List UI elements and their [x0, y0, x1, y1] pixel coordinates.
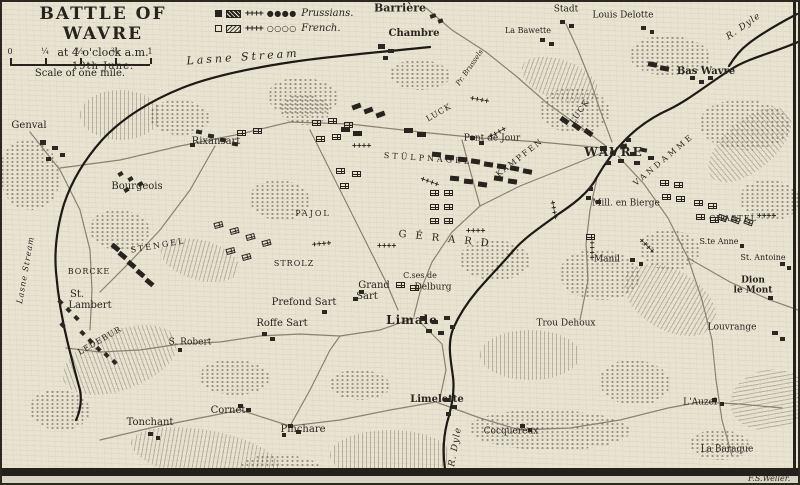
map-label: R. Dyle	[725, 12, 763, 42]
map-label: Chambre	[389, 29, 440, 39]
french-picket-marks: ++++	[245, 24, 263, 34]
french-skirmish-dots: ○ ○ ○ ○	[267, 24, 296, 33]
map-label: Delburg	[414, 284, 451, 293]
scale-tick	[45, 58, 47, 64]
scale-tick-label: 1	[147, 47, 152, 56]
scale-tick-label: ½	[76, 47, 84, 56]
french-cavalry-icon	[226, 25, 241, 33]
map-label: Pinchare	[280, 425, 325, 435]
map-label: Pajol	[295, 210, 331, 218]
map-label: S.te Anne	[699, 238, 738, 246]
map-label: Manil	[594, 256, 620, 265]
map-label: St. Antoine	[740, 254, 785, 262]
map-label: Trou Dehoux	[536, 320, 595, 329]
map-label: Ledebur	[77, 325, 123, 356]
french-infantry-icon	[215, 25, 222, 32]
map-label: Prefond Sart	[272, 298, 337, 308]
map-label: Stadt	[554, 6, 579, 15]
map-label: Lasne Stream	[186, 48, 300, 67]
scale-caption: Scale of one mile.	[10, 68, 150, 79]
map-label: Roffe Sart	[256, 319, 307, 329]
map-label: Bas Wavre	[677, 67, 735, 77]
scale-line: 0¼½¾1	[10, 56, 150, 66]
scale-tick-label: ¾	[111, 47, 119, 56]
legend: ++++ ● ● ● ● Prussians. ++++ ○ ○ ○ ○ Fre…	[215, 6, 353, 36]
map-label: Gérard	[398, 230, 498, 250]
scale-tick-label: ¼	[41, 47, 49, 56]
map-label: C.ses de	[403, 272, 437, 280]
prussian-cavalry-icon	[226, 10, 241, 18]
legend-label-french: French.	[301, 23, 340, 34]
prussian-infantry-icon	[215, 10, 222, 17]
map-label: Limale	[386, 314, 438, 326]
map-label: Lasne Stream	[16, 236, 36, 305]
map-label: Tonchant	[127, 418, 174, 428]
legend-row-prussians: ++++ ● ● ● ● Prussians.	[215, 6, 353, 21]
scale-tick	[115, 58, 117, 64]
map-label: Wavre	[584, 146, 644, 158]
map-border-right	[793, 0, 796, 470]
map-label: R. Dyle	[448, 427, 464, 468]
map-label: Limelette	[410, 395, 464, 405]
map-label: le Mont	[734, 287, 773, 296]
legend-label-prussians: Prussians.	[301, 8, 353, 19]
prussian-picket-marks: ++++	[245, 9, 263, 19]
map-label: Luck	[425, 103, 453, 124]
map-label: Dion	[741, 277, 765, 286]
prussian-skirmish-dots: ● ● ● ●	[267, 9, 296, 18]
map-label: La Bawette	[505, 27, 551, 35]
scale-tick	[80, 58, 82, 64]
page-margin-bottom	[0, 476, 800, 485]
map-title: BATTLE OF WAVRE	[8, 4, 198, 44]
map-label: Mill. en Bierge	[592, 200, 660, 209]
map-canvas: ++++++++++++++++++++++++++++++++++++++++…	[0, 0, 800, 485]
map-label: La Baraque	[701, 446, 754, 455]
map-label: Borcke	[68, 268, 111, 276]
scale-bar: 0¼½¾1 Scale of one mile.	[10, 56, 150, 79]
map-label: Bourgeois	[111, 182, 162, 192]
map-label: Vandamme	[632, 132, 696, 187]
engraver-signature: F.S.Weller.	[748, 474, 790, 483]
scale-tick	[150, 58, 152, 64]
map-label: Genval	[11, 121, 46, 131]
scale-tick-label: 0	[7, 47, 12, 56]
scale-tick	[10, 58, 12, 64]
map-label: Strolz	[274, 260, 314, 268]
map-border-bottom	[0, 468, 800, 476]
map-label: St.	[70, 290, 84, 300]
map-label: Grand	[358, 281, 390, 291]
map-label: Barrière	[374, 3, 426, 14]
legend-row-french: ++++ ○ ○ ○ ○ French.	[215, 21, 353, 36]
map-label: L'Auzel	[683, 399, 717, 408]
map-label: Cornet	[211, 406, 246, 416]
map-label: Pr. Brussels	[455, 49, 485, 87]
map-label: Sart	[356, 292, 378, 302]
map-label: Louis Delotte	[593, 12, 654, 21]
map-label: Louvrange	[708, 324, 757, 333]
map-label: Stengel	[130, 237, 186, 254]
map-label: Lambert	[68, 301, 111, 311]
map-label: Chastel	[709, 215, 757, 223]
map-label: Stülpnagel	[384, 152, 473, 166]
map-label: S. Robert	[169, 339, 212, 348]
map-label: Pont de Jour	[464, 135, 520, 144]
map-label: Cocquereux	[484, 428, 539, 437]
map-label: Luck	[569, 98, 591, 125]
map-label: Rixansart	[192, 137, 241, 147]
